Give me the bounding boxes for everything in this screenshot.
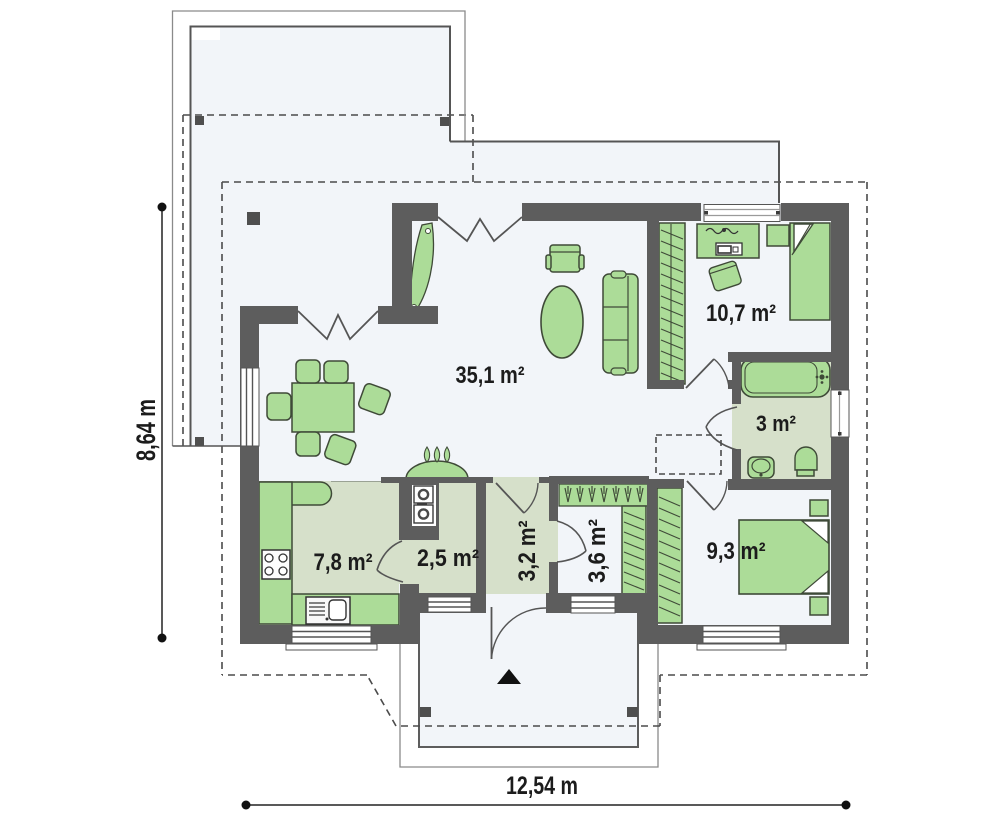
svg-text:12,54 m: 12,54 m (506, 772, 578, 800)
svg-text:3,6 m²: 3,6 m² (584, 519, 611, 583)
svg-text:7,8 m²: 7,8 m² (314, 549, 373, 576)
svg-text:3,2 m²: 3,2 m² (514, 521, 541, 582)
svg-text:10,7 m²: 10,7 m² (706, 300, 776, 327)
svg-text:8,64 m: 8,64 m (131, 399, 161, 461)
svg-text:3 m²: 3 m² (756, 411, 796, 436)
svg-text:9,3 m²: 9,3 m² (707, 538, 766, 565)
svg-text:35,1 m²: 35,1 m² (456, 362, 525, 389)
svg-text:2,5 m²: 2,5 m² (417, 545, 479, 572)
